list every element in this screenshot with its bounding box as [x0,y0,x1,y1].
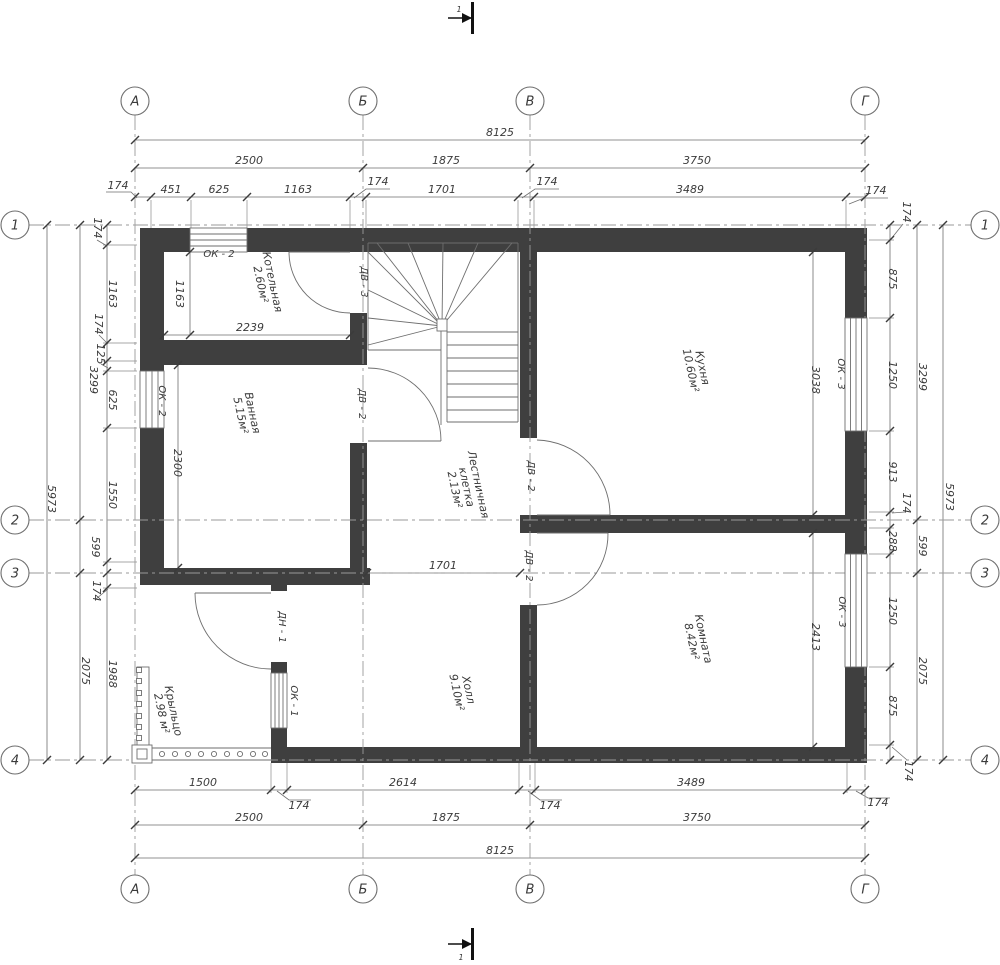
axis-bubble-label: 4 [981,754,989,769]
axis-bubble-label: 2 [11,514,19,529]
axis-bubble: А [121,875,149,903]
railing-baluster [198,751,203,756]
axis-bubble-label: 3 [11,567,19,582]
wall [845,228,867,763]
section-cut-bar [471,928,474,960]
dimension-text: 174 [90,581,103,602]
dimension-text: 1163 [284,183,312,196]
axis-bubble: 1 [971,211,999,239]
wall [140,340,367,365]
axis-bubble: 4 [971,746,999,774]
dimension-text: 2075 [916,657,929,685]
dimension-text: 625 [106,390,119,411]
dimension-text: 451 [161,183,182,196]
axis-bubble: 2 [971,506,999,534]
dimension-text: 174 [866,184,887,197]
axis-bubble-label: Б [359,95,368,110]
dimension-text: 174 [900,493,913,514]
dimension-text: 599 [89,537,102,558]
door-tag-label: ДВ - 3 [358,265,369,297]
dimension-text: 174 [868,796,889,809]
dimension-text: 625 [209,183,230,196]
railing-post [137,714,142,719]
axis-bubble: Г [851,87,879,115]
wall [271,747,867,763]
door-tag-label: ДВ - 2 [356,387,367,419]
axis-bubble: Б [349,87,377,115]
dimension-text: 8125 [486,844,514,857]
dimension-text: 174 [902,761,915,782]
railing-post [137,691,142,696]
dimension-text: 174 [108,179,129,192]
railing-baluster [237,751,242,756]
dimension-text: 1988 [106,660,119,688]
railing-baluster [224,751,229,756]
dimension-text: 2500 [235,811,263,824]
dimension-text: 875 [886,269,899,290]
railing-frame [137,749,147,759]
dimension-text: 875 [886,696,899,717]
window-tag-label: ОК - 1 [288,685,299,716]
section-number: 1 [456,5,461,14]
window-tag-label: ОК - 2 [156,385,167,416]
dimension-text: 3299 [87,366,100,394]
dimension-text: 3489 [677,776,705,789]
axis-bubble-label: А [130,95,140,110]
wall [350,443,367,568]
dimension-text: 5973 [45,485,58,513]
dimension-text: 1163 [106,280,119,308]
stair-newel-post [437,319,447,331]
floor-plan: 8125250018753750174451625116317417011743… [0,0,1000,965]
dimension-text: 1500 [189,776,217,789]
door-tag-label: ДН - 1 [276,610,287,643]
axis-bubble-label: В [526,95,535,110]
dimension-text: 174 [92,314,105,335]
dimension-text: 2239 [236,321,264,334]
window-tag-label: ОК - 3 [836,596,847,627]
dimension-text: 599 [916,536,929,557]
dimension-text: 3489 [676,183,704,196]
door-tag-label: ДВ - 2 [525,459,536,491]
door-tag-label: ДВ - 2 [523,549,534,581]
railing-post [137,702,142,707]
dimension-text: 2500 [235,154,263,167]
dimension-text: 3750 [683,811,711,824]
axis-bubble: 3 [1,559,29,587]
railing-baluster [159,751,164,756]
dimension-text: 3038 [809,366,822,394]
window-tag-label: ОК - 2 [203,249,234,260]
railing-post [137,679,142,684]
axis-bubble-label: 1 [981,219,989,234]
axis-bubble-label: Б [359,883,368,898]
axis-bubble: 3 [971,559,999,587]
axis-bubble: В [516,875,544,903]
dimension-text: 2614 [389,776,417,789]
dimension-text: 174 [368,175,389,188]
axis-bubble-label: 1 [11,219,19,234]
dimension-text: 8125 [486,126,514,139]
axis-bubble: 2 [1,506,29,534]
dimension-text: 2413 [809,623,822,651]
axis-bubble: В [516,87,544,115]
dimension-text: 5973 [943,483,956,511]
wall [520,252,537,438]
dimension-text: 125 [94,344,107,365]
dimension-text: 1250 [886,597,899,625]
dimension-text: 2075 [79,657,92,685]
railing-post [137,736,142,741]
floor-plan-canvas: 8125250018753750174451625116317417011743… [0,0,1000,965]
dimension-text: 3299 [916,363,929,391]
railing-baluster [185,751,190,756]
dimension-text: 1875 [432,811,460,824]
dimension-text: 1875 [432,154,460,167]
axis-bubble-label: 2 [981,514,989,529]
wall [520,515,845,533]
railing-baluster [250,751,255,756]
wall [350,313,367,340]
dimension-text: 1701 [429,559,457,572]
dimension-text: 288 [886,531,899,552]
railing-baluster [262,751,267,756]
section-number: 1 [458,953,463,962]
railing-baluster [172,751,177,756]
wall [140,228,867,252]
axis-bubble: Г [851,875,879,903]
dimension-text: 3750 [683,154,711,167]
axis-bubble-label: В [526,883,535,898]
railing-post [137,725,142,730]
dimension-text: 1701 [428,183,456,196]
axis-bubble: 1 [1,211,29,239]
dimension-text: 1550 [106,481,119,509]
dimension-text: 174 [900,202,913,223]
dimension-text: 174 [289,799,310,812]
railing-post [137,668,142,673]
axis-bubble: 4 [1,746,29,774]
dimension-text: 174 [91,218,104,239]
axis-bubble: Б [349,875,377,903]
section-cut-bar [471,2,474,34]
dimension-text: 174 [537,175,558,188]
dimension-text: 174 [540,799,561,812]
axis-bubble-label: 4 [11,754,19,769]
window-tag-label: ОК - 3 [835,358,846,389]
railing-baluster [211,751,216,756]
dimension-text: 1163 [173,280,186,308]
axis-bubble-label: А [130,883,140,898]
dimension-text: 1250 [886,361,899,389]
dimension-text: 913 [886,462,899,483]
dimension-text: 2300 [171,449,184,477]
axis-bubble-label: 3 [981,567,989,582]
axis-bubble: А [121,87,149,115]
wall [520,605,537,747]
